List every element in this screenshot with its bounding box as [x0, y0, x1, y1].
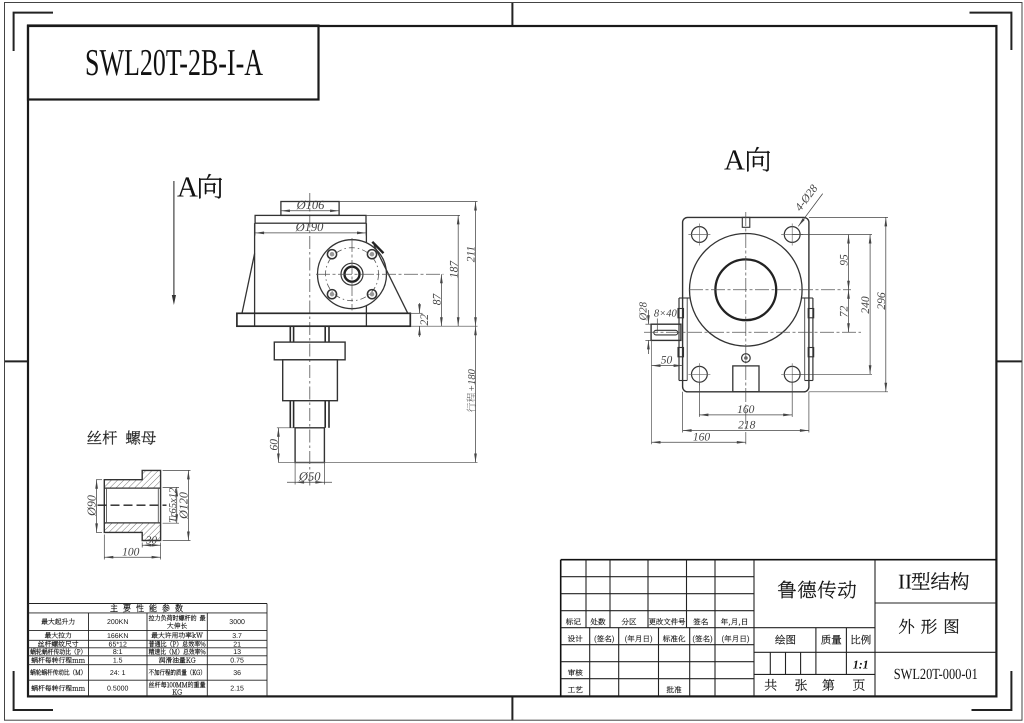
svg-text:160: 160 — [693, 431, 711, 443]
svg-text:2.15: 2.15 — [230, 686, 244, 693]
svg-text:21: 21 — [233, 641, 241, 648]
svg-text:13: 13 — [233, 649, 241, 656]
svg-text:218: 218 — [738, 420, 756, 432]
svg-text:0.5000: 0.5000 — [107, 686, 129, 693]
svg-text:8:1: 8:1 — [113, 649, 123, 656]
svg-text:Ø90: Ø90 — [85, 495, 99, 517]
svg-text:A: A — [724, 145, 745, 177]
svg-text:SWL20T-2B-I-A: SWL20T-2B-I-A — [85, 42, 263, 84]
svg-text:87: 87 — [432, 293, 444, 306]
svg-text:Tr65x12: Tr65x12 — [168, 487, 179, 523]
svg-text:3.7: 3.7 — [232, 633, 242, 640]
svg-text:Ø190: Ø190 — [295, 220, 325, 234]
svg-text:1:1: 1:1 — [853, 657, 869, 671]
svg-text:3000: 3000 — [229, 619, 245, 626]
svg-text:1.5: 1.5 — [113, 658, 123, 665]
svg-text:8×40: 8×40 — [654, 309, 678, 320]
svg-text:II: II — [898, 570, 912, 594]
svg-text:SWL20T-000-01: SWL20T-000-01 — [894, 666, 978, 683]
svg-text:187: 187 — [448, 260, 460, 279]
svg-text:A: A — [177, 172, 198, 204]
svg-text:65*12: 65*12 — [109, 641, 127, 648]
svg-text:240: 240 — [860, 296, 872, 314]
svg-text:60: 60 — [269, 439, 281, 451]
svg-text:200KN: 200KN — [107, 619, 128, 626]
svg-text:Ø50: Ø50 — [298, 469, 321, 483]
svg-text:72: 72 — [839, 306, 851, 318]
svg-text:+180: +180 — [467, 368, 478, 392]
svg-text:Ø106: Ø106 — [296, 198, 326, 212]
svg-text:166KN: 166KN — [107, 633, 128, 640]
svg-text:160: 160 — [737, 404, 755, 416]
svg-text:296: 296 — [876, 292, 888, 310]
svg-text:0.75: 0.75 — [230, 658, 244, 665]
svg-text:211: 211 — [466, 246, 478, 262]
svg-text:24: 1: 24: 1 — [110, 670, 126, 677]
svg-text:50: 50 — [661, 355, 673, 367]
svg-text:95: 95 — [839, 254, 851, 266]
svg-text:Ø28: Ø28 — [637, 301, 649, 321]
svg-text:36: 36 — [233, 670, 241, 677]
svg-text:22: 22 — [419, 314, 431, 326]
svg-text:30: 30 — [145, 534, 158, 546]
svg-text:100: 100 — [122, 546, 140, 558]
